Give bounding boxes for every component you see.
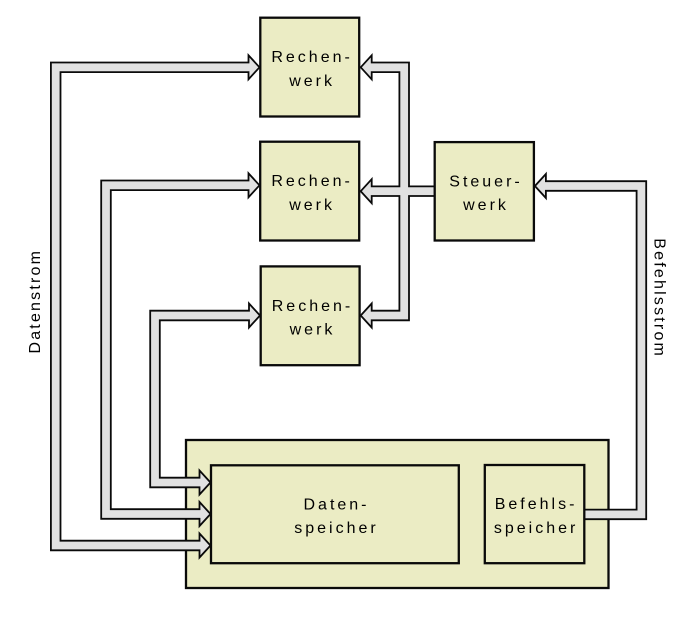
svg-text:Datenstrom: Datenstrom [27,249,44,354]
svg-text:werk: werk [288,197,335,214]
svg-text:Rechen-: Rechen- [271,49,352,66]
svg-text:werk: werk [289,322,336,339]
svg-text:Steuer-: Steuer- [449,173,522,190]
svg-text:speicher: speicher [494,520,578,537]
svg-text:werk: werk [462,197,509,214]
svg-text:speicher: speicher [294,520,378,537]
svg-text:Befehlsstrom: Befehlsstrom [651,238,668,358]
svg-text:werk: werk [288,73,335,90]
svg-text:Rechen-: Rechen- [272,298,353,315]
svg-text:Rechen-: Rechen- [271,173,352,190]
svg-text:Daten-: Daten- [303,496,369,513]
svg-text:Befehls-: Befehls- [495,496,578,513]
